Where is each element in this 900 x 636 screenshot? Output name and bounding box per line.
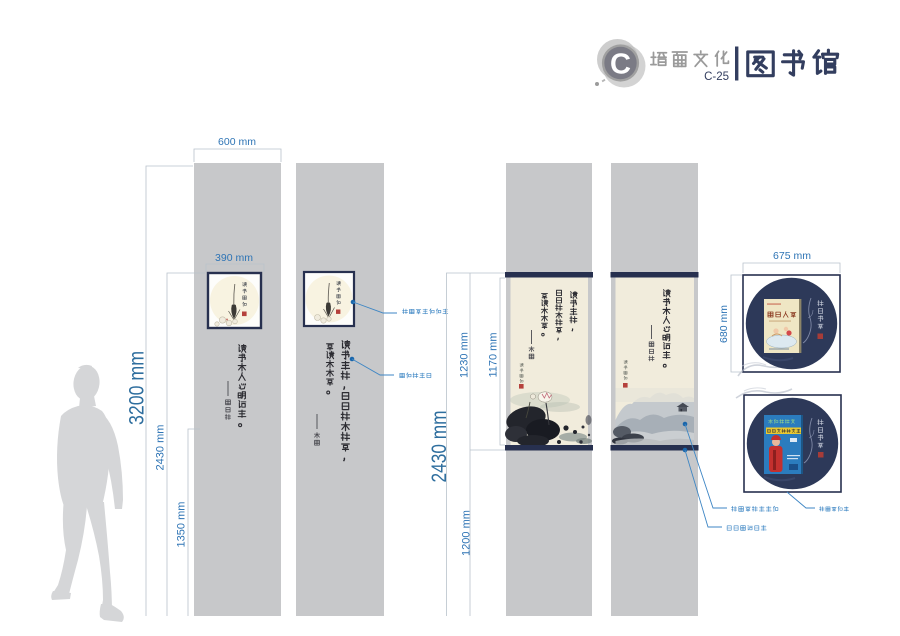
svg-text:1350 mm: 1350 mm bbox=[176, 502, 188, 548]
svg-text:2430 mm: 2430 mm bbox=[428, 411, 451, 483]
svg-text:2430 mm: 2430 mm bbox=[155, 425, 167, 471]
svg-text:3200 mm: 3200 mm bbox=[126, 351, 149, 425]
svg-text:C-25: C-25 bbox=[704, 71, 729, 83]
svg-text:675 mm: 675 mm bbox=[773, 250, 811, 262]
svg-text:600 mm: 600 mm bbox=[218, 136, 256, 148]
svg-text:C: C bbox=[610, 49, 631, 81]
svg-text:1230 mm: 1230 mm bbox=[459, 332, 471, 378]
svg-text:1170 mm: 1170 mm bbox=[488, 332, 500, 377]
svg-text:390 mm: 390 mm bbox=[215, 252, 253, 264]
svg-text:680 mm: 680 mm bbox=[718, 305, 730, 343]
svg-text:1200 mm: 1200 mm bbox=[461, 510, 473, 556]
